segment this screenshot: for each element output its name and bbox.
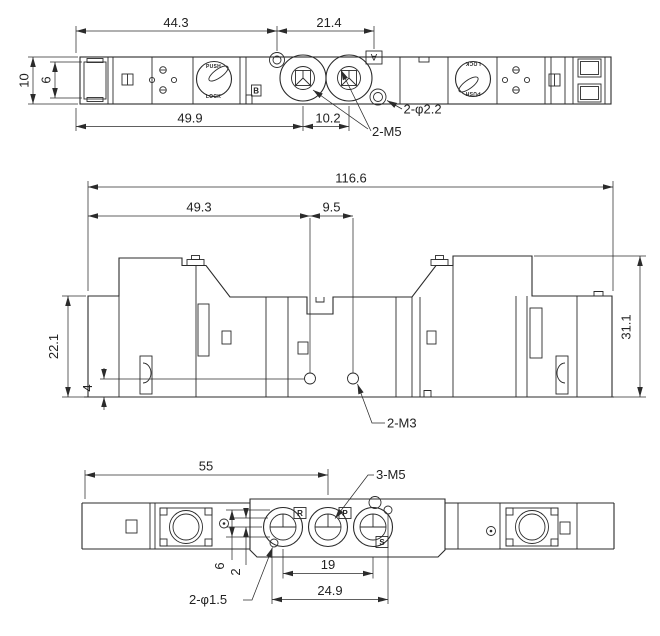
port-label-s: S	[379, 538, 385, 547]
corner-hole	[369, 497, 381, 509]
port-m5-b	[326, 55, 372, 101]
label-mount-holes: 2-φ2.2	[404, 102, 442, 117]
m3-hole-1	[305, 373, 316, 384]
dim-top-height: 10	[17, 73, 32, 87]
dim-top-port-spacing: 10.2	[315, 111, 340, 126]
front-view: 116.6 49.3 9.5 22.1 4 31.1 2-M3	[46, 171, 646, 431]
mounting-bracket-left	[160, 508, 212, 546]
bottom-view-body: R P S	[82, 497, 614, 558]
indicator-window	[122, 74, 133, 85]
port-label-r: R	[297, 509, 303, 518]
manual-override-knob-right: LOCK PUSH	[456, 60, 491, 97]
mount-hole-top-left	[270, 53, 285, 68]
dim-top-bottom-left: 49.9	[177, 111, 202, 126]
top-view: PUSH LOCK B	[17, 15, 612, 139]
manual-override-knob-left: PUSH LOCK	[197, 62, 232, 101]
dim-front-height-right: 31.1	[619, 314, 634, 339]
m3-hole-2	[348, 373, 359, 384]
dim-bottom-offset-b: 2	[228, 568, 243, 575]
mount-hole-bottom-right	[370, 89, 386, 105]
top-view-body: PUSH LOCK B	[80, 51, 611, 105]
dim-top-height-inner: 6	[39, 76, 54, 83]
label-screw-holes-m3: 2-M3	[387, 416, 417, 431]
knob-lock-text-left: LOCK	[206, 94, 221, 100]
solenoid-screws-left	[149, 67, 176, 94]
bottom-view: R P S	[82, 459, 614, 608]
dim-bottom-width-left: 55	[199, 459, 213, 474]
dim-front-height-base: 4	[80, 384, 95, 391]
dim-bottom-offset-a: 6	[212, 562, 227, 569]
dim-front-width-center: 9.5	[322, 200, 340, 215]
screw-right	[487, 527, 496, 536]
dim-top-width-overall: 44.3	[163, 15, 188, 30]
port-label-b: B	[253, 86, 259, 95]
port-label-b-box: B	[252, 85, 262, 96]
dim-front-width-left: 49.3	[186, 200, 211, 215]
dim-bottom-hole-span: 24.9	[317, 583, 342, 598]
dim-bottom-port-span: 19	[321, 557, 335, 572]
dim-top-width-right: 21.4	[316, 15, 341, 30]
dim-front-width-overall: 116.6	[335, 171, 367, 186]
drawing-canvas: PUSH LOCK B	[0, 0, 660, 636]
connector-block	[84, 59, 106, 102]
front-view-body	[84, 256, 614, 398]
label-ports-3m5: 3-M5	[376, 467, 406, 482]
label-ports-m5: 2-M5	[372, 124, 402, 139]
port-label-p: P	[342, 509, 348, 518]
valve-dimensional-drawing: PUSH LOCK B	[0, 0, 660, 636]
knob-lock-text-right: LOCK	[465, 60, 480, 66]
solenoid-screws-right	[502, 67, 529, 94]
mounting-bracket-right	[506, 508, 558, 546]
terminal-block	[578, 59, 601, 102]
port-label-a: A	[370, 51, 377, 62]
pin-hole-2	[384, 506, 392, 514]
label-pin-holes: 2-φ1.5	[189, 592, 227, 607]
dim-front-height-left: 22.1	[46, 334, 61, 359]
knob-push-text-left: PUSH	[206, 64, 221, 70]
knob-push-text-right: PUSH	[465, 90, 480, 96]
